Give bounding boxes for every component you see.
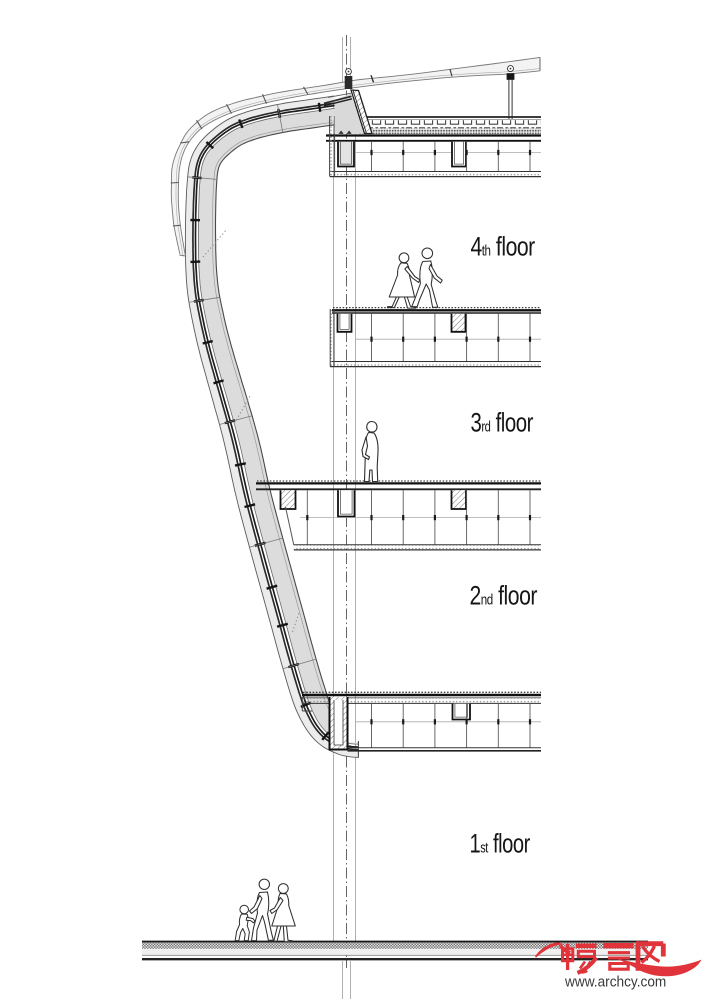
svg-text:3rd floor: 3rd floor [471, 409, 534, 438]
svg-text:www.archcy.com: www.archcy.com [564, 974, 666, 991]
svg-text:1st floor: 1st floor [470, 829, 531, 858]
svg-text:4th floor: 4th floor [471, 232, 536, 262]
svg-text:2nd floor: 2nd floor [470, 581, 538, 611]
